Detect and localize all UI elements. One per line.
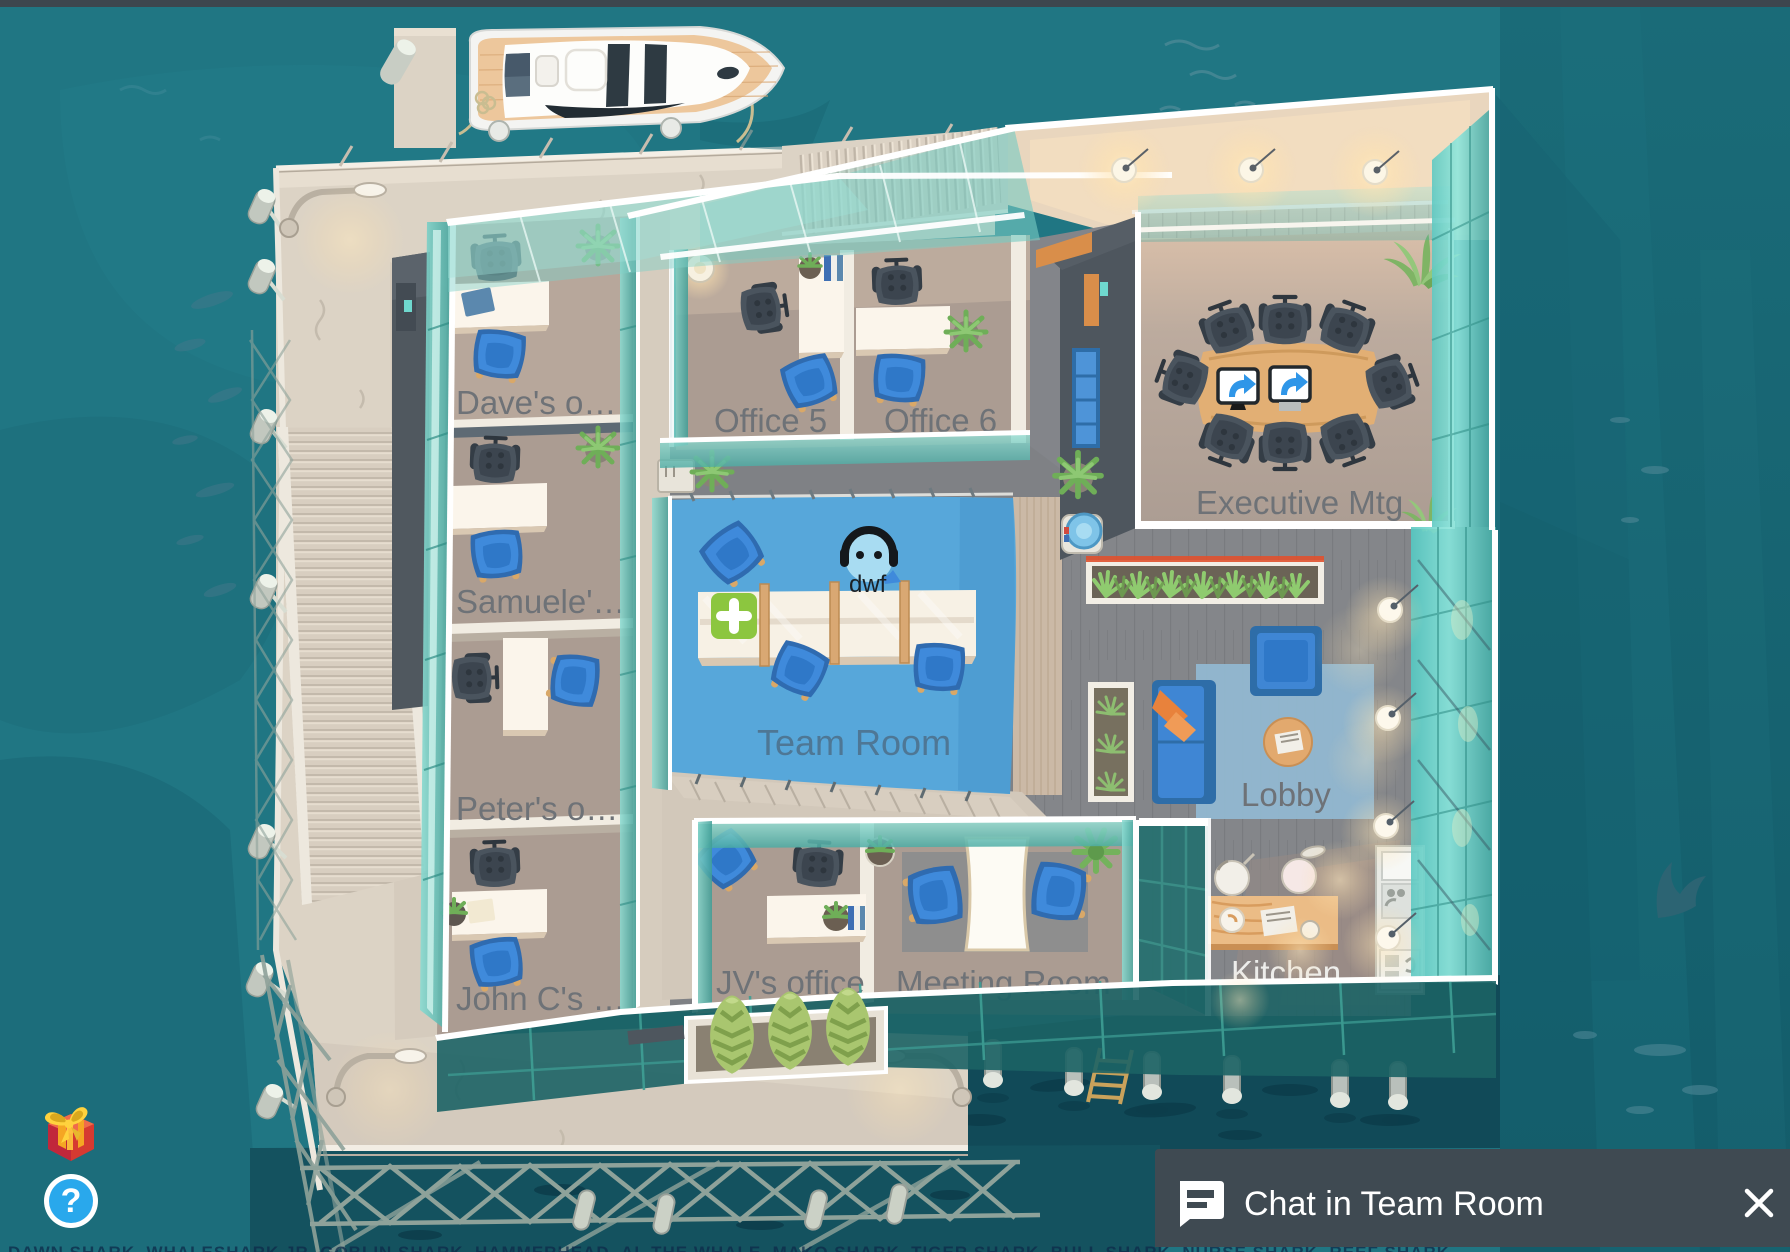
svg-text:Dave's o…: Dave's o… (456, 384, 616, 421)
svg-text:Peter's o…: Peter's o… (456, 790, 618, 827)
svg-text:Office 5: Office 5 (714, 402, 827, 439)
svg-text:Chat in Team Room: Chat in Team Room (1244, 1185, 1544, 1223)
svg-text:dwf: dwf (849, 571, 887, 598)
svg-text:Lobby: Lobby (1241, 776, 1331, 813)
svg-text:John C's …: John C's … (456, 980, 626, 1017)
svg-text:Team Room: Team Room (757, 722, 951, 763)
svg-text:Executive Mtg: Executive Mtg (1196, 484, 1403, 521)
svg-text:Samuele'…: Samuele'… (456, 583, 626, 620)
svg-text:?: ? (61, 1182, 82, 1220)
